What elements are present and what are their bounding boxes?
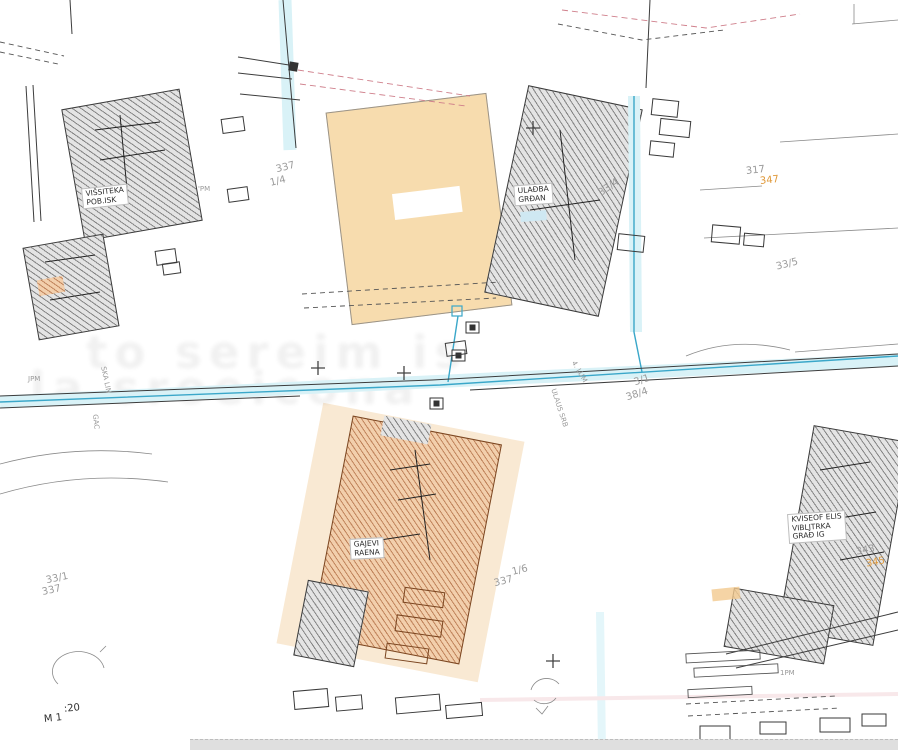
road-edges: [0, 0, 898, 668]
utility-node-square: [452, 306, 462, 316]
red-dashed-lines: [298, 10, 800, 106]
label-building-right: KVISEOF ELIS VIBLJTRKA GRAĐ IG: [787, 510, 847, 544]
label-building-right-line3: GRAĐ IG: [792, 529, 843, 541]
scale-note-left: M 1: [44, 713, 63, 725]
point-mark: JPM: [28, 376, 40, 383]
point-mark: 1PM: [780, 670, 795, 677]
scale-note-right: :20: [64, 703, 81, 715]
site-plan-canvas: to sereim is la sroeicona: [0, 0, 898, 750]
point-mark: 'PM: [198, 186, 210, 193]
street-label: GAC: [91, 414, 100, 430]
label-building-topcenter: ULAĐBA GRĐAN: [513, 183, 553, 207]
label-building-topcenter-line2: GRĐAN: [518, 194, 550, 205]
parcel-number-orange: 347: [760, 175, 780, 187]
plan-linework: [0, 0, 898, 750]
label-building-center: GAJEVI RAENA: [349, 537, 384, 560]
label-building-topcenter-bluebox: [520, 210, 547, 222]
context-lines: [0, 4, 898, 714]
label-building-topleft-line2: POB.ISK: [86, 195, 125, 208]
dimension-bars: [686, 650, 778, 698]
building-outlines-brown: [385, 587, 445, 664]
bottom-gray-strip: [190, 739, 898, 750]
label-building-center-line2: RAENA: [354, 548, 380, 558]
parcel-interior-lines: [45, 115, 884, 560]
survey-marker-filled: [288, 61, 298, 71]
